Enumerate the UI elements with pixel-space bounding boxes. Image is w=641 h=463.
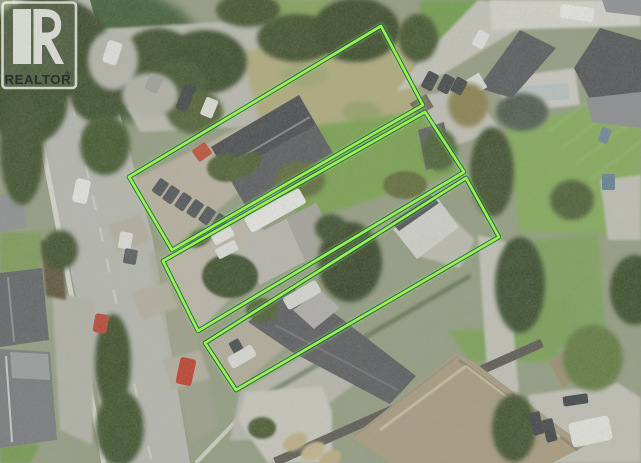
svg-text:®: ®: [65, 70, 71, 79]
svg-text:REALTOR: REALTOR: [5, 72, 72, 87]
